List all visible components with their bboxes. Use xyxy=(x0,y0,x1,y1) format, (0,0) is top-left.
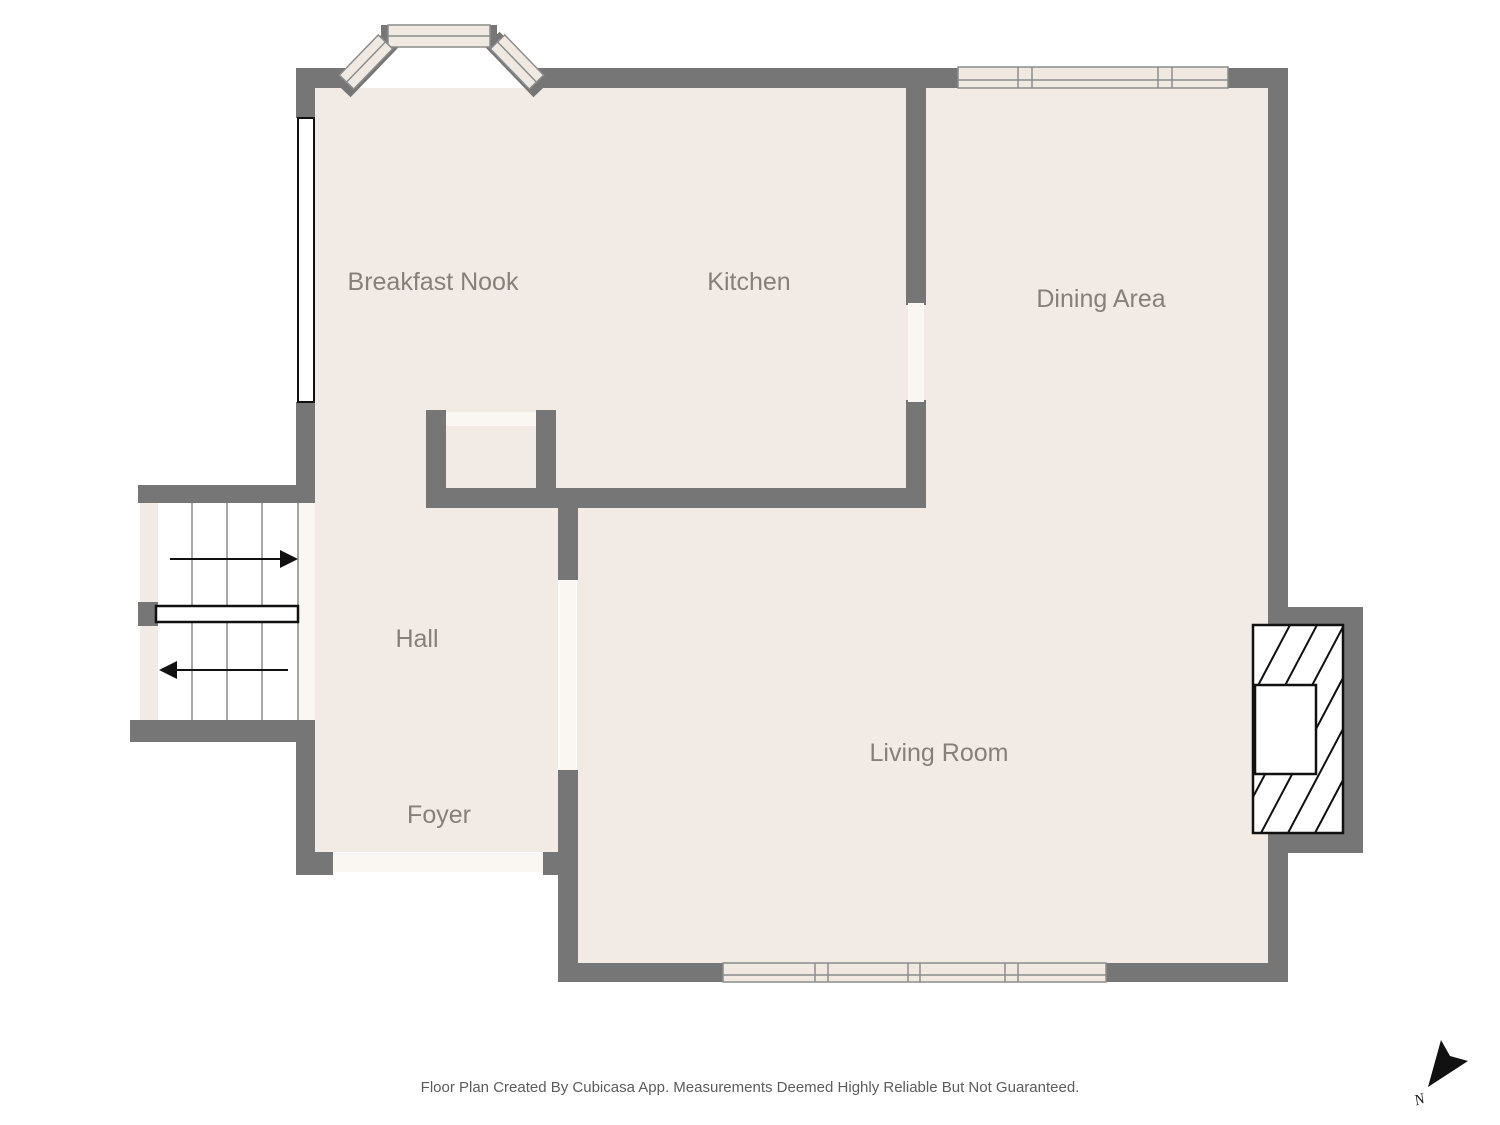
kitchen-hall-wall xyxy=(426,488,926,508)
footer-disclaimer: Floor Plan Created By Cubicasa App. Meas… xyxy=(421,1079,1080,1096)
room-label-hall: Hall xyxy=(395,625,438,653)
room-label-kitchen: Kitchen xyxy=(707,268,790,296)
floor-plan-page: Breakfast Nook Kitchen Dining Area Hall … xyxy=(0,0,1500,1125)
bay-right-window-icon xyxy=(490,35,543,89)
closet-opening xyxy=(446,412,536,426)
kitchen-dining-opening xyxy=(908,303,924,402)
foyer-corner-block xyxy=(543,852,578,875)
stair-bottom-wall xyxy=(130,720,313,742)
fireplace-hearth-opening xyxy=(1255,685,1316,774)
closet-right-wall xyxy=(536,410,556,488)
closet-left-wall xyxy=(426,410,446,488)
living-window-band xyxy=(723,963,1106,982)
stair-rail-divider xyxy=(156,606,298,622)
room-label-dining-area: Dining Area xyxy=(1036,285,1165,313)
north-arrow-label: N xyxy=(1411,1091,1427,1110)
dining-window-band xyxy=(958,67,1228,88)
bay-window xyxy=(339,25,543,90)
floor-hall-foyer xyxy=(315,488,558,852)
left-wall-window-icon xyxy=(298,118,314,402)
stair-hall-opening xyxy=(298,503,315,720)
floor-living-room xyxy=(577,508,1268,963)
bay-center-window-icon xyxy=(388,25,490,47)
room-label-living-room: Living Room xyxy=(870,739,1009,767)
room-label-breakfast-nook: Breakfast Nook xyxy=(348,268,519,296)
front-entry-opening xyxy=(333,853,543,872)
hall-living-wall-upper xyxy=(558,508,578,580)
north-arrow-icon: N xyxy=(1411,1040,1468,1110)
floor-plan-canvas: Breakfast Nook Kitchen Dining Area Hall … xyxy=(0,0,1500,1125)
stair-top-wall xyxy=(138,485,313,503)
kitchen-dining-wall-upper xyxy=(906,88,926,305)
hall-living-opening xyxy=(560,580,576,770)
room-label-foyer: Foyer xyxy=(407,801,471,829)
